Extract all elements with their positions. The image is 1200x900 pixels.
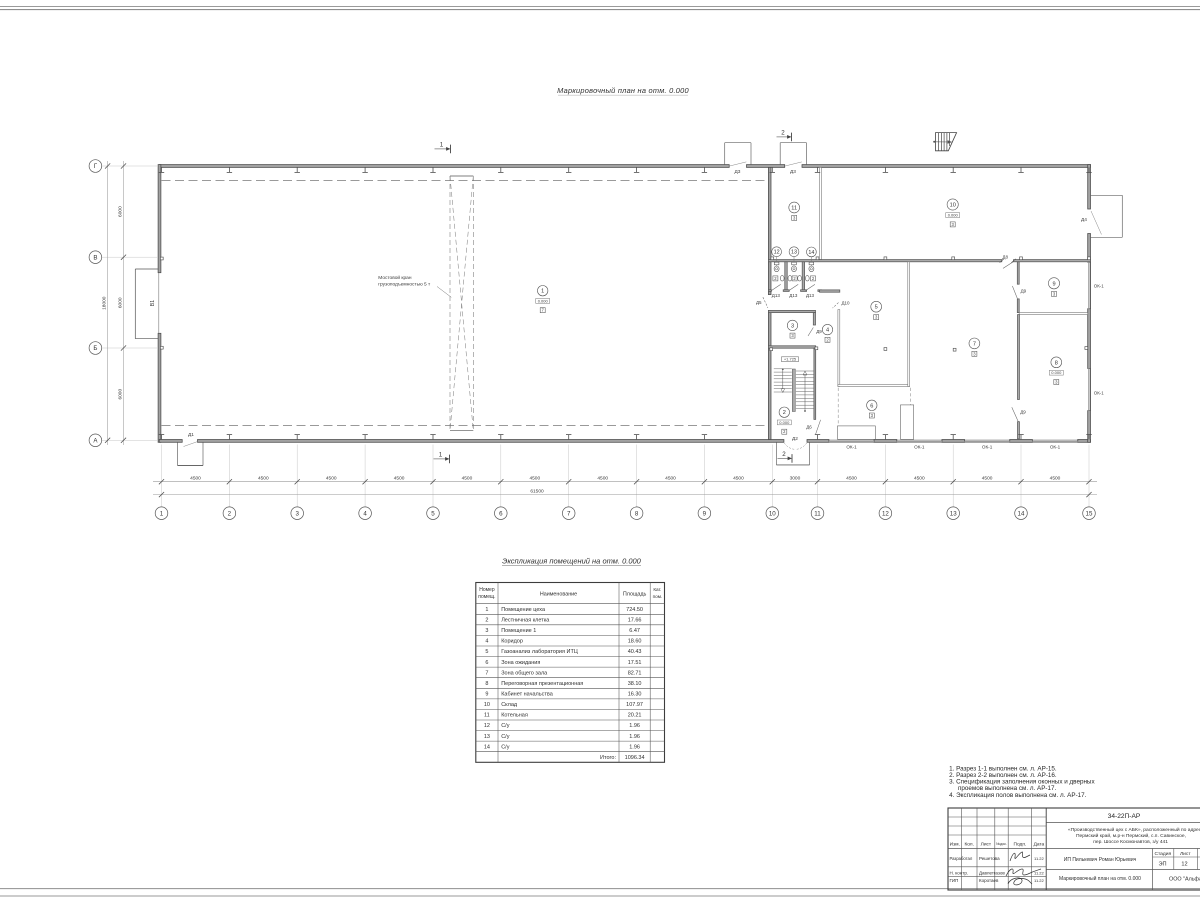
svg-text:4: 4: [826, 328, 829, 334]
svg-text:3: 3: [295, 510, 299, 517]
svg-text:ИП Пилькевич Роман Юрьевич: ИП Пилькевич Роман Юрьевич: [1064, 857, 1137, 863]
svg-text:Помещение 1: Помещение 1: [501, 628, 536, 634]
svg-text:ОК-1: ОК-1: [982, 444, 993, 449]
svg-text:12: 12: [484, 723, 490, 729]
svg-text:4500: 4500: [326, 476, 337, 482]
svg-text:107.97: 107.97: [626, 702, 643, 708]
svg-text:Д9: Д9: [1021, 289, 1027, 294]
svg-text:61500: 61500: [530, 489, 544, 495]
svg-text:Номер: Номер: [479, 587, 495, 593]
svg-text:0.000: 0.000: [538, 298, 549, 303]
svg-text:17.66: 17.66: [628, 618, 642, 624]
svg-text:10: 10: [950, 203, 956, 209]
svg-text:Д13: Д13: [772, 293, 781, 298]
svg-text:13: 13: [950, 510, 957, 517]
svg-text:4500: 4500: [733, 476, 744, 482]
svg-text:Д5: Д5: [756, 300, 762, 305]
svg-text:3: 3: [485, 628, 488, 634]
svg-text:Коротаев: Коротаев: [979, 878, 999, 883]
svg-text:6000: 6000: [117, 297, 123, 308]
svg-text:14: 14: [484, 744, 490, 750]
svg-text:«Производственный цех с АБК»,: «Производственный цех с АБК», расположен…: [1068, 826, 1200, 833]
svg-text:14: 14: [808, 250, 814, 256]
svg-text:помещ.: помещ.: [478, 594, 495, 600]
svg-text:4: 4: [363, 510, 367, 517]
svg-text:6: 6: [870, 403, 873, 409]
svg-text:38.10: 38.10: [628, 681, 642, 687]
svg-text:ОК-1: ОК-1: [914, 444, 925, 449]
svg-text:Решетова: Решетова: [979, 856, 1000, 861]
svg-text:4500: 4500: [665, 476, 676, 482]
svg-text:ОК-1: ОК-1: [846, 444, 857, 449]
svg-text:Итого:: Итого:: [600, 755, 616, 761]
svg-text:С/у: С/у: [501, 744, 510, 750]
svg-text:2: 2: [485, 618, 488, 624]
svg-text:1.96: 1.96: [629, 744, 640, 750]
svg-text:4500: 4500: [462, 476, 473, 482]
svg-text:Наименование: Наименование: [540, 592, 577, 598]
svg-text:Разработал: Разработал: [950, 856, 973, 861]
svg-text:4: 4: [485, 639, 488, 645]
svg-text:82.71: 82.71: [628, 670, 642, 676]
svg-text:8: 8: [1055, 360, 1058, 366]
svg-text:Д2: Д2: [792, 436, 798, 442]
svg-text:Д8: Д8: [1002, 255, 1008, 260]
svg-text:С/у: С/у: [501, 734, 510, 740]
svg-text:1: 1: [485, 607, 488, 613]
svg-text:3000: 3000: [790, 476, 801, 482]
svg-text:20.21: 20.21: [628, 713, 642, 719]
svg-text:Помещение цеха: Помещение цеха: [501, 607, 546, 613]
svg-text:Изм.: Изм.: [950, 841, 960, 847]
svg-text:12: 12: [774, 250, 780, 256]
svg-text:С/у: С/у: [501, 723, 510, 729]
svg-text:Лестничная клетка: Лестничная клетка: [501, 618, 550, 624]
svg-text:Стадия: Стадия: [1154, 851, 1171, 857]
svg-text:ГИП: ГИП: [950, 878, 959, 883]
svg-text:Н. контр.: Н. контр.: [950, 871, 969, 876]
svg-text:9: 9: [485, 692, 488, 698]
svg-text:0.000: 0.000: [779, 420, 790, 425]
svg-text:8: 8: [635, 510, 639, 517]
svg-text:5: 5: [431, 510, 435, 517]
svg-text:Лист: Лист: [1180, 851, 1191, 857]
svg-text:Кабинет начальства: Кабинет начальства: [501, 692, 554, 698]
svg-text:Д4: Д4: [1081, 217, 1087, 223]
svg-text:Кол.: Кол.: [964, 841, 974, 847]
svg-text:34-22П-АР: 34-22П-АР: [1108, 813, 1141, 820]
svg-text:4500: 4500: [1050, 476, 1061, 482]
svg-text:15: 15: [1086, 510, 1093, 517]
svg-text:1: 1: [541, 289, 544, 295]
svg-text:4. Экспликация полов выполнена: 4. Экспликация полов выполнена см. л. АР…: [949, 792, 1087, 799]
svg-text:+1.725: +1.725: [784, 357, 797, 362]
svg-text:Давлетгазов: Давлетгазов: [979, 871, 1005, 876]
svg-text:№док.: №док.: [996, 842, 1007, 846]
svg-text:12: 12: [1181, 862, 1187, 868]
svg-text:17.51: 17.51: [628, 660, 642, 666]
svg-text:2: 2: [782, 451, 786, 458]
svg-text:Лист: Лист: [981, 841, 992, 847]
svg-text:Мостовой кран: Мостовой кран: [378, 274, 412, 281]
svg-text:Маркировочный план на отм. 0.0: Маркировочный план на отм. 0.000: [1059, 875, 1141, 882]
svg-text:11: 11: [791, 206, 797, 212]
svg-text:5: 5: [875, 305, 878, 311]
svg-text:11.22: 11.22: [1034, 878, 1044, 883]
svg-text:11.22: 11.22: [1034, 856, 1044, 861]
svg-text:В: В: [93, 254, 97, 261]
svg-text:2: 2: [783, 410, 786, 416]
svg-text:1.96: 1.96: [629, 723, 640, 729]
svg-text:1: 1: [160, 510, 164, 517]
svg-text:1096.34: 1096.34: [625, 755, 645, 761]
svg-text:Д9: Д9: [1020, 409, 1026, 414]
svg-text:Д6: Д6: [806, 424, 812, 429]
svg-text:Д10: Д10: [842, 301, 851, 306]
svg-text:Склад: Склад: [501, 702, 518, 708]
svg-text:Экспликация помещений на отм.: Экспликация помещений на отм. 0.000: [502, 556, 642, 565]
svg-text:Маркировочный план на отм. 0.: Маркировочный план на отм. 0.000: [557, 86, 689, 95]
svg-text:10: 10: [484, 702, 490, 708]
svg-text:40.43: 40.43: [628, 649, 642, 655]
svg-text:6000: 6000: [117, 389, 123, 400]
svg-text:Д3: Д3: [790, 169, 796, 175]
svg-text:Подп.: Подп.: [1014, 841, 1027, 847]
svg-text:ООО "Альфа": ООО "Альфа": [1169, 877, 1200, 883]
svg-text:3: 3: [791, 323, 794, 329]
svg-text:14: 14: [1018, 510, 1025, 517]
svg-text:11: 11: [814, 510, 821, 517]
svg-text:Кат.: Кат.: [653, 587, 661, 592]
svg-text:2: 2: [781, 129, 785, 136]
svg-text:4500: 4500: [394, 476, 405, 482]
svg-text:18.60: 18.60: [628, 639, 642, 645]
svg-text:13: 13: [484, 734, 490, 740]
svg-text:Б: Б: [93, 345, 97, 352]
svg-text:Коридор: Коридор: [501, 639, 523, 645]
svg-text:пом.: пом.: [653, 594, 663, 599]
svg-text:7: 7: [567, 510, 571, 517]
svg-text:Газоанализ лаборатория ИТЦ: Газоанализ лаборатория ИТЦ: [501, 649, 578, 655]
svg-text:ОК-1: ОК-1: [1094, 391, 1104, 396]
svg-text:4500: 4500: [914, 476, 925, 482]
svg-text:Зона общего зала: Зона общего зала: [501, 670, 548, 676]
svg-text:Д13: Д13: [789, 293, 798, 298]
svg-text:0.000: 0.000: [1051, 370, 1062, 375]
svg-text:13: 13: [791, 250, 797, 256]
svg-text:Дата: Дата: [1034, 841, 1045, 847]
svg-text:Д9: Д9: [816, 329, 822, 334]
svg-text:Д3: Д3: [735, 169, 741, 175]
svg-text:Пермский край, м.р-н Пермский,: Пермский край, м.р-н Пермский, с.п. Сави…: [1076, 832, 1186, 839]
svg-text:4500: 4500: [597, 476, 608, 482]
svg-text:16.30: 16.30: [628, 692, 642, 698]
svg-text:0.000: 0.000: [948, 213, 959, 218]
svg-text:6: 6: [499, 510, 503, 517]
svg-text:9: 9: [1052, 281, 1055, 287]
svg-text:4500: 4500: [982, 476, 993, 482]
svg-text:ОК-1: ОК-1: [1094, 283, 1104, 288]
svg-text:6.47: 6.47: [629, 628, 640, 634]
svg-text:2: 2: [228, 510, 232, 517]
svg-text:ОК-1: ОК-1: [1050, 444, 1061, 449]
svg-text:1: 1: [439, 451, 443, 458]
svg-text:1.96: 1.96: [629, 734, 640, 740]
svg-text:Переговорная презентационная: Переговорная презентационная: [501, 681, 583, 687]
svg-text:4500: 4500: [529, 476, 540, 482]
svg-text:Площадь: Площадь: [623, 592, 647, 598]
svg-text:грузоподъемностью 5 т: грузоподъемностью 5 т: [378, 281, 431, 287]
svg-text:11: 11: [484, 713, 490, 719]
svg-text:4500: 4500: [258, 476, 269, 482]
svg-text:В1: В1: [150, 300, 156, 306]
svg-text:Д13: Д13: [806, 293, 815, 298]
svg-text:10: 10: [769, 510, 776, 517]
svg-text:9: 9: [703, 510, 707, 517]
svg-text:4500: 4500: [846, 476, 857, 482]
svg-text:1: 1: [440, 141, 444, 148]
svg-text:6: 6: [485, 660, 488, 666]
svg-text:Котельная: Котельная: [501, 713, 528, 719]
svg-text:18000: 18000: [102, 296, 108, 310]
svg-text:12: 12: [882, 510, 889, 517]
svg-text:6000: 6000: [117, 206, 123, 217]
svg-text:7: 7: [973, 341, 976, 347]
svg-text:5: 5: [485, 649, 488, 655]
svg-text:ЭП: ЭП: [1158, 862, 1166, 868]
svg-text:8: 8: [485, 681, 488, 687]
svg-text:7: 7: [485, 670, 488, 676]
svg-text:Зона ожидания: Зона ожидания: [501, 660, 540, 666]
svg-text:Д1: Д1: [188, 432, 194, 438]
svg-text:пер. Шоссе Космонавтов, з/у 44: пер. Шоссе Космонавтов, з/у 441: [1093, 839, 1168, 845]
svg-text:724.50: 724.50: [626, 607, 643, 613]
svg-text:4500: 4500: [190, 476, 201, 482]
